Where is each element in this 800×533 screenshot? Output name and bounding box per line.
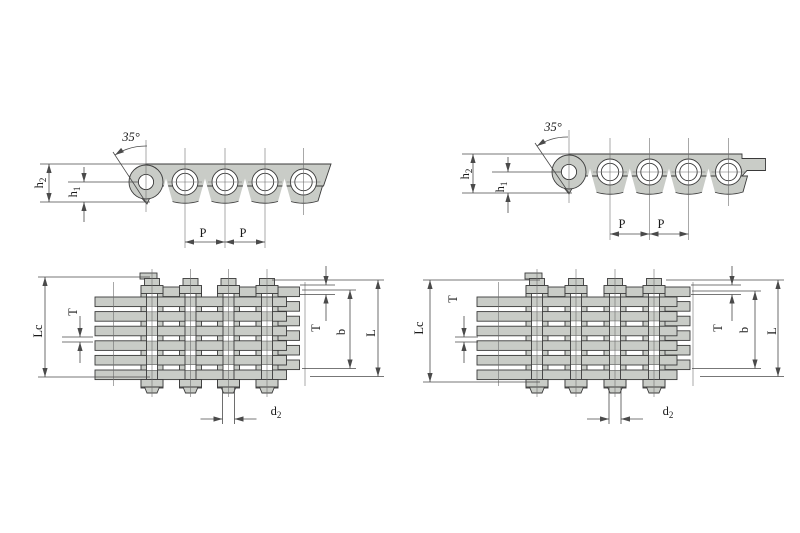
side-view-left-chain <box>40 140 331 248</box>
t-label-left-inner: T <box>66 308 80 316</box>
pitch-p-label-right-2: P <box>658 217 665 231</box>
h2-label-left: h2 <box>32 178 48 189</box>
angle-35deg-label-left: 35° <box>121 130 140 144</box>
h1-label-left: h1 <box>66 187 82 198</box>
angle-35deg-label-right: 35° <box>543 120 562 134</box>
h2-label-right: h2 <box>458 169 474 180</box>
lc-label-right: Lc <box>412 321 426 335</box>
lc-label-left: Lc <box>31 324 45 338</box>
leaf-chain-drawing: 35° h2 h1 P P 35° h2 h1 P P Lc T T b L d… <box>0 0 800 533</box>
pitch-p-label-right-1: P <box>619 217 626 231</box>
plan-view-left-chain <box>38 266 384 424</box>
plan-view-right-chain <box>423 266 784 424</box>
h1-label-right: h1 <box>493 182 509 193</box>
t-label-right-outer: T <box>711 324 725 332</box>
pitch-p-label-left-2: P <box>240 226 247 240</box>
d2-label-left: d2 <box>271 404 282 420</box>
pitch-p-label-left-1: P <box>200 226 207 240</box>
b-label-left: b <box>334 329 348 335</box>
t-label-left-outer: T <box>309 324 323 332</box>
b-label-right: b <box>737 327 751 333</box>
l-label-left: L <box>364 329 378 337</box>
t-label-right-inner: T <box>446 295 460 303</box>
technical-drawing-canvas: 35° h2 h1 P P 35° h2 h1 P P Lc T T b L d… <box>0 0 800 533</box>
d2-label-right: d2 <box>663 404 674 420</box>
l-label-right: L <box>765 327 779 335</box>
